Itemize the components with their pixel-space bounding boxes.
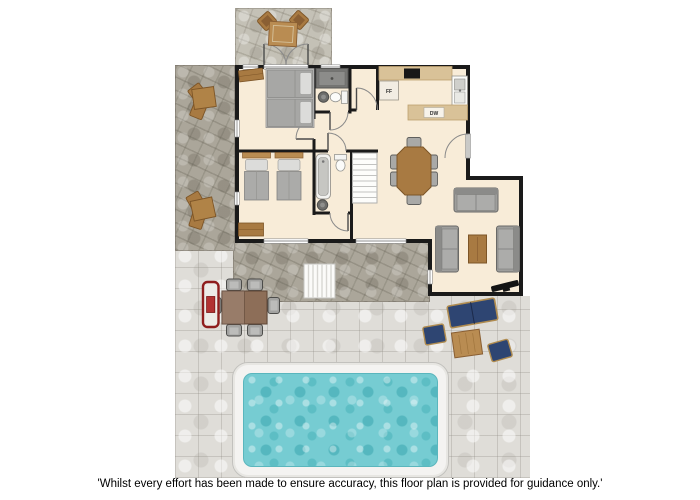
basin	[318, 92, 328, 102]
dresser	[238, 68, 263, 82]
staircase	[353, 153, 378, 203]
headboard	[243, 153, 271, 159]
bbq-grill	[203, 282, 219, 327]
bathtub	[316, 154, 331, 199]
outdoor-lounge-set	[423, 298, 513, 362]
dishwasher-counter: DW	[408, 105, 468, 120]
dining-chair	[407, 195, 421, 205]
sink-unit	[452, 76, 468, 106]
fridge-freezer-label: FF	[386, 89, 392, 95]
lounge-table	[451, 329, 482, 358]
outdoor-chair	[227, 325, 242, 337]
dresser	[239, 223, 264, 236]
outdoor-dining-set	[210, 279, 280, 336]
outdoor-table	[222, 291, 267, 324]
floorplan-drawing: FF DW	[0, 0, 700, 500]
basin	[317, 200, 327, 210]
lounge-stool	[423, 324, 447, 345]
pillow	[246, 160, 268, 171]
sofa	[497, 226, 520, 272]
patio-bistro-set-2	[186, 191, 216, 230]
outdoor-chair	[248, 325, 263, 337]
outdoor-chair	[248, 279, 263, 291]
pillow	[278, 160, 300, 171]
lounge-stool	[487, 339, 512, 362]
coffee-table	[469, 235, 487, 263]
outdoor-chair	[227, 279, 242, 291]
lounge-sofa	[447, 298, 498, 328]
double-bed	[266, 69, 314, 128]
dishwasher-label: DW	[430, 111, 439, 117]
faucet-icon	[459, 89, 461, 91]
patio-steps	[304, 264, 335, 298]
headboard	[275, 153, 303, 159]
patio-bistro-set-1	[187, 83, 216, 120]
floor-plan-canvas: FF DW	[0, 0, 700, 500]
sofa	[454, 188, 498, 212]
dining-chair	[407, 138, 421, 148]
outdoor-chair	[268, 298, 280, 314]
terrace-dining-set	[257, 10, 310, 47]
french-doors	[264, 44, 308, 65]
pillow	[300, 102, 312, 124]
hob	[404, 69, 420, 79]
dining-table	[397, 147, 431, 195]
disclaimer-text: 'Whilst every effort has been made to en…	[0, 478, 700, 490]
terrace-table	[268, 21, 297, 46]
single-bed	[243, 153, 271, 201]
pillow	[300, 73, 312, 95]
single-bed	[275, 153, 303, 201]
bathroom-1	[316, 69, 348, 104]
fridge-freezer: FF	[380, 81, 399, 100]
bistro-table	[190, 197, 216, 221]
toilet	[335, 155, 347, 172]
bistro-table	[192, 87, 217, 110]
sofa	[436, 226, 459, 272]
shower	[316, 69, 348, 89]
